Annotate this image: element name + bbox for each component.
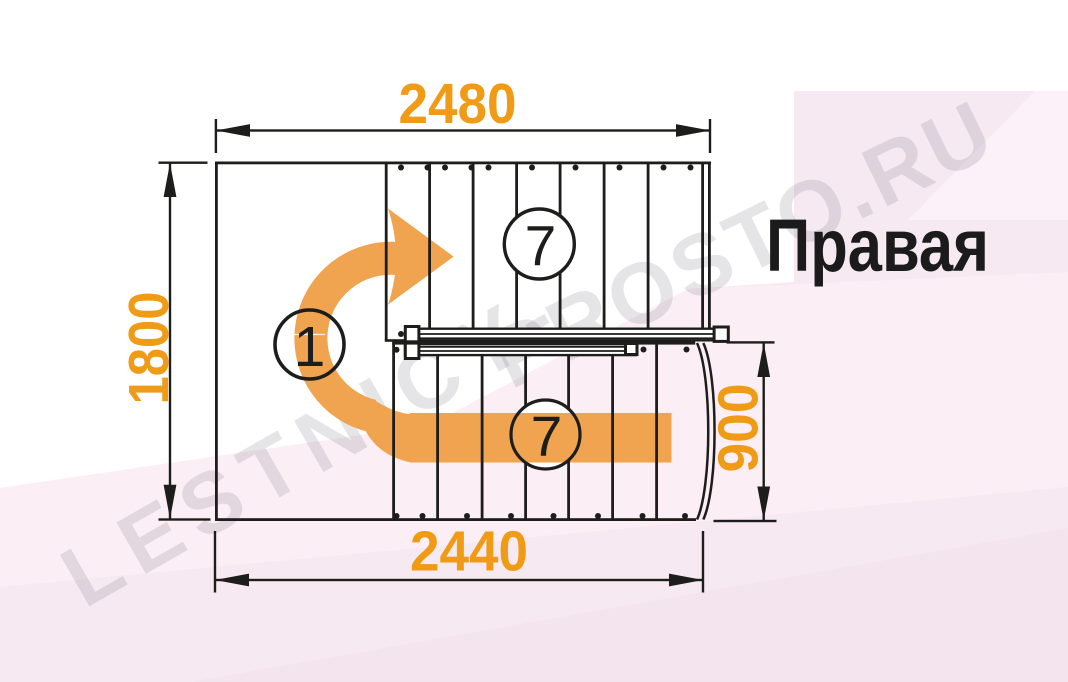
svg-text:1: 1 [294,315,326,379]
svg-text:7: 7 [525,215,557,279]
svg-text:2480: 2480 [399,72,517,136]
svg-text:900: 900 [707,384,771,473]
svg-text:1800: 1800 [117,292,181,405]
svg-text:Правая: Правая [766,204,989,287]
svg-text:7: 7 [531,405,563,469]
svg-text:2440: 2440 [410,520,528,584]
